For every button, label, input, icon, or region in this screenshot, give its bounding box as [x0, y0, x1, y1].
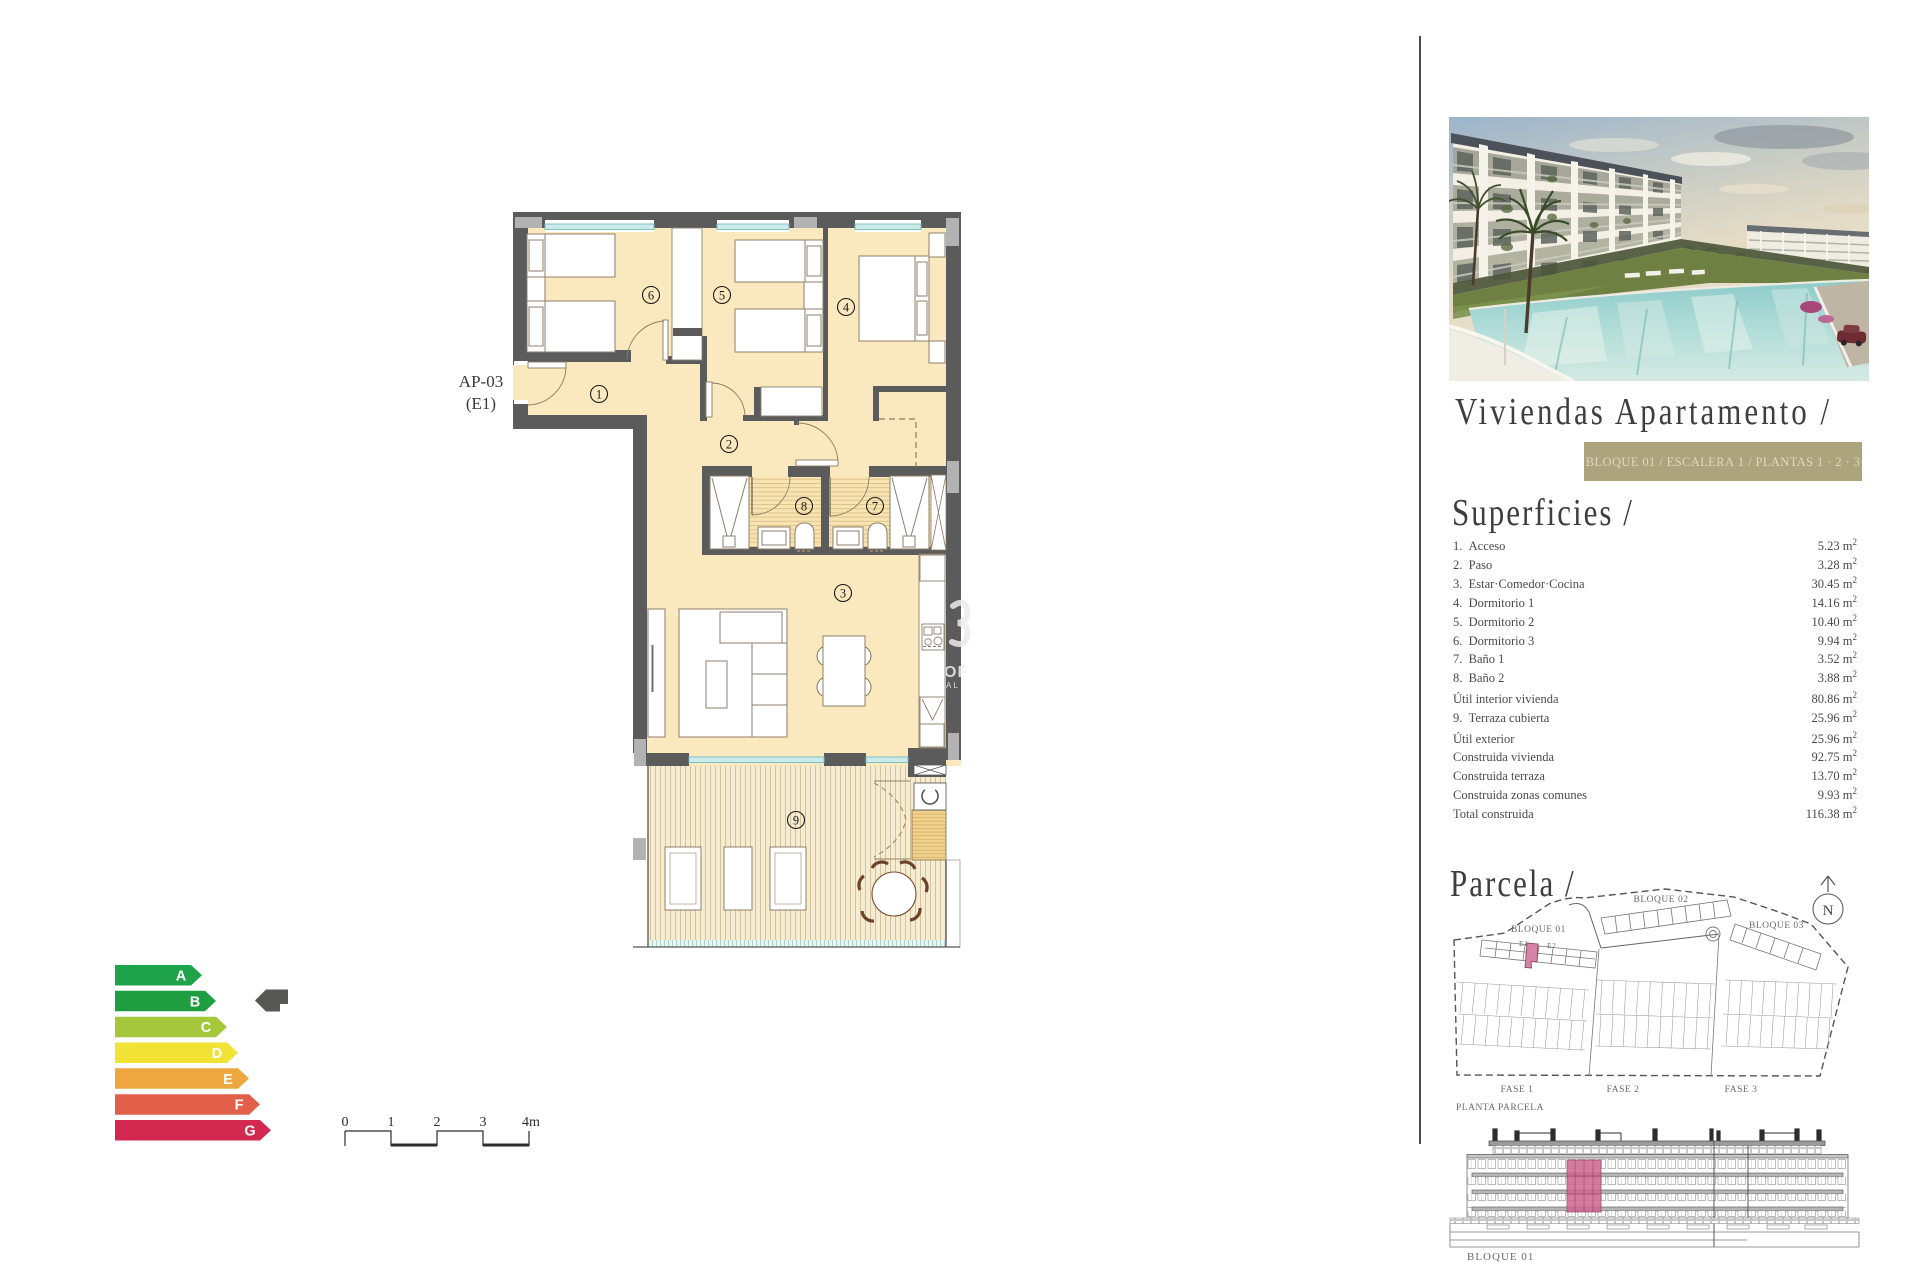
- svg-text:FASE 1: FASE 1: [1501, 1085, 1534, 1095]
- svg-text:8: 8: [801, 500, 807, 514]
- svg-text:BLOQUE 03: BLOQUE 03: [1749, 921, 1804, 931]
- svg-text:0: 0: [342, 1115, 349, 1130]
- svg-text:BLOQUE 01: BLOQUE 01: [1467, 1251, 1534, 1263]
- svg-text:FASE 2: FASE 2: [1607, 1085, 1640, 1095]
- svg-text:G: G: [244, 1124, 255, 1140]
- svg-text:F: F: [235, 1098, 244, 1114]
- svg-text:E2: E2: [1547, 941, 1556, 950]
- svg-text:7: 7: [872, 500, 878, 514]
- svg-text:4m: 4m: [522, 1115, 540, 1130]
- svg-text:AP-03: AP-03: [459, 372, 503, 391]
- svg-text:2: 2: [726, 438, 732, 452]
- svg-text:A: A: [176, 969, 187, 985]
- svg-text:D: D: [212, 1046, 222, 1062]
- svg-text:(E1): (E1): [466, 394, 496, 413]
- svg-text:B: B: [190, 994, 200, 1010]
- svg-text:OF: OF: [944, 664, 968, 681]
- svg-text:N: N: [1823, 903, 1834, 919]
- svg-text:C: C: [201, 1020, 212, 1036]
- svg-text:4: 4: [843, 301, 850, 315]
- svg-text:3: 3: [480, 1115, 487, 1130]
- svg-text:BLOQUE 02: BLOQUE 02: [1634, 895, 1689, 905]
- svg-text:E: E: [223, 1072, 233, 1088]
- svg-text:PLANTA PARCELA: PLANTA PARCELA: [1456, 1103, 1544, 1113]
- svg-text:2: 2: [434, 1115, 441, 1130]
- svg-text:1: 1: [388, 1115, 395, 1130]
- svg-text:9: 9: [793, 814, 799, 828]
- svg-text:E1: E1: [1519, 939, 1528, 948]
- svg-text:1: 1: [596, 388, 602, 402]
- svg-text:6: 6: [648, 289, 654, 303]
- svg-text:FASE 3: FASE 3: [1725, 1085, 1758, 1095]
- svg-text:AL: AL: [946, 681, 960, 690]
- svg-text:5: 5: [719, 289, 725, 303]
- svg-text:3: 3: [840, 587, 846, 601]
- svg-text:BLOQUE 01: BLOQUE 01: [1511, 925, 1566, 935]
